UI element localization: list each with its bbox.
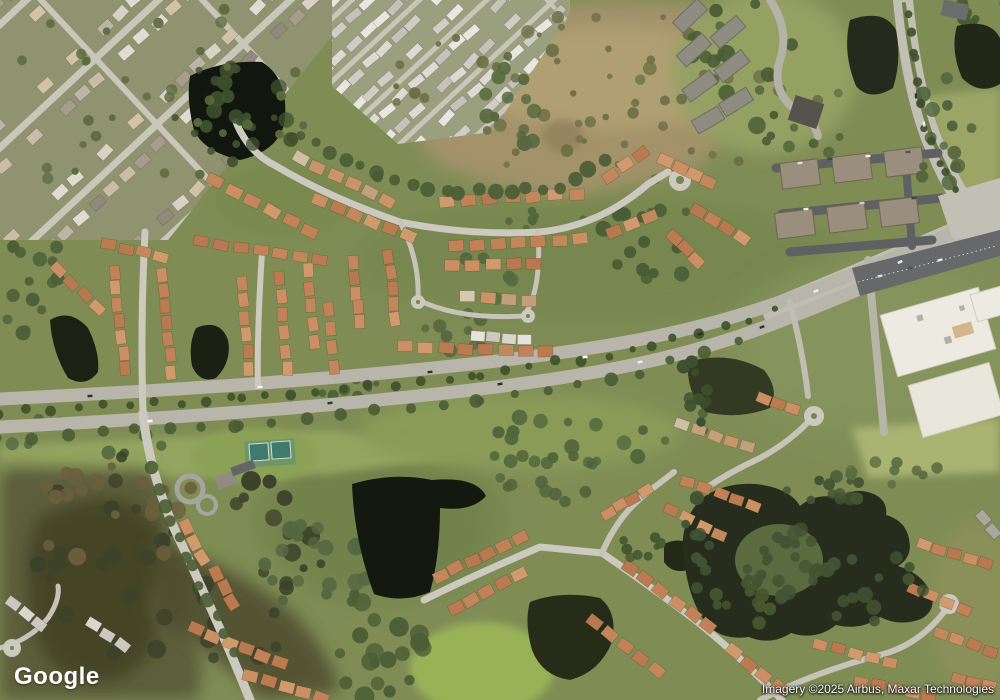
culdesac-o2-island xyxy=(526,314,530,318)
car xyxy=(797,162,802,165)
house xyxy=(486,331,501,342)
culdesac-curve-island xyxy=(676,176,684,184)
house xyxy=(160,299,170,313)
house xyxy=(253,244,269,256)
house xyxy=(389,311,401,326)
car xyxy=(87,395,92,398)
house xyxy=(165,365,176,380)
house xyxy=(388,297,399,311)
house xyxy=(464,260,479,271)
house xyxy=(438,342,454,354)
apt-5 xyxy=(827,203,868,233)
house xyxy=(502,333,517,344)
house xyxy=(388,281,399,296)
house xyxy=(526,258,541,269)
house xyxy=(521,296,536,307)
culdesac-left-island xyxy=(10,646,14,650)
map-canvas xyxy=(0,0,1000,700)
apt-4 xyxy=(775,209,816,239)
house xyxy=(354,314,365,328)
house xyxy=(530,236,546,248)
house xyxy=(241,327,253,342)
google-logo[interactable]: Google xyxy=(14,663,100,691)
house xyxy=(552,235,567,246)
pond-topright-west xyxy=(847,16,898,95)
house xyxy=(111,298,122,313)
house xyxy=(348,270,360,285)
house xyxy=(100,238,116,250)
car xyxy=(911,197,916,200)
house xyxy=(478,344,493,355)
apt-6 xyxy=(879,197,920,227)
house xyxy=(353,300,364,315)
house xyxy=(109,265,121,280)
tennis-court-1 xyxy=(249,443,269,461)
house xyxy=(471,331,486,342)
house xyxy=(572,232,588,245)
house xyxy=(398,340,413,351)
car xyxy=(147,420,152,423)
house xyxy=(158,283,170,298)
house xyxy=(239,311,250,325)
house xyxy=(469,239,485,251)
house xyxy=(292,251,308,263)
house xyxy=(161,315,172,330)
house xyxy=(506,258,522,270)
house xyxy=(236,276,247,291)
house xyxy=(518,345,533,356)
car xyxy=(865,155,870,158)
house xyxy=(303,263,314,277)
house xyxy=(165,347,176,362)
house xyxy=(445,260,460,271)
house xyxy=(243,344,253,358)
house xyxy=(162,331,174,346)
house xyxy=(350,287,361,301)
house xyxy=(448,240,464,252)
culdesac-rm-island xyxy=(811,413,817,419)
house xyxy=(303,282,314,297)
house xyxy=(501,294,517,306)
house xyxy=(156,268,168,283)
house xyxy=(490,238,506,250)
house xyxy=(499,345,514,356)
house xyxy=(348,255,359,270)
house xyxy=(237,292,249,307)
house xyxy=(276,289,287,304)
house xyxy=(110,280,121,295)
wetland-dark xyxy=(27,498,166,681)
house xyxy=(323,302,335,317)
house xyxy=(460,291,475,302)
house xyxy=(114,313,125,328)
house xyxy=(118,346,129,361)
house xyxy=(243,362,253,376)
house xyxy=(382,249,394,264)
house xyxy=(325,321,336,336)
house xyxy=(457,343,473,355)
imagery-attribution: Imagery ©2025 Airbus, Maxar Technologies xyxy=(762,682,994,696)
house xyxy=(418,342,433,353)
house xyxy=(385,265,397,280)
house xyxy=(120,361,131,376)
house xyxy=(274,271,285,285)
house xyxy=(328,360,339,375)
house xyxy=(283,361,293,375)
house xyxy=(233,242,249,253)
house xyxy=(279,344,291,359)
house xyxy=(480,292,496,304)
car xyxy=(803,208,808,211)
house xyxy=(517,335,531,345)
house xyxy=(305,298,315,312)
house xyxy=(538,346,553,357)
house xyxy=(308,334,320,349)
car xyxy=(859,202,864,205)
house xyxy=(326,340,338,355)
house xyxy=(510,236,526,248)
car xyxy=(827,158,832,161)
house xyxy=(570,189,585,201)
car xyxy=(257,386,262,389)
culdesac-o1-island xyxy=(416,300,420,304)
house xyxy=(115,330,127,345)
satellite-map[interactable]: Google Imagery ©2025 Airbus, Maxar Techn… xyxy=(0,0,1000,700)
tennis-court-2 xyxy=(271,441,291,459)
house xyxy=(486,259,501,270)
car xyxy=(905,151,910,154)
street-north xyxy=(142,232,145,413)
house xyxy=(278,325,290,340)
house xyxy=(193,235,209,247)
house xyxy=(307,316,319,331)
car xyxy=(915,93,918,98)
house xyxy=(277,307,287,321)
house xyxy=(311,254,327,266)
